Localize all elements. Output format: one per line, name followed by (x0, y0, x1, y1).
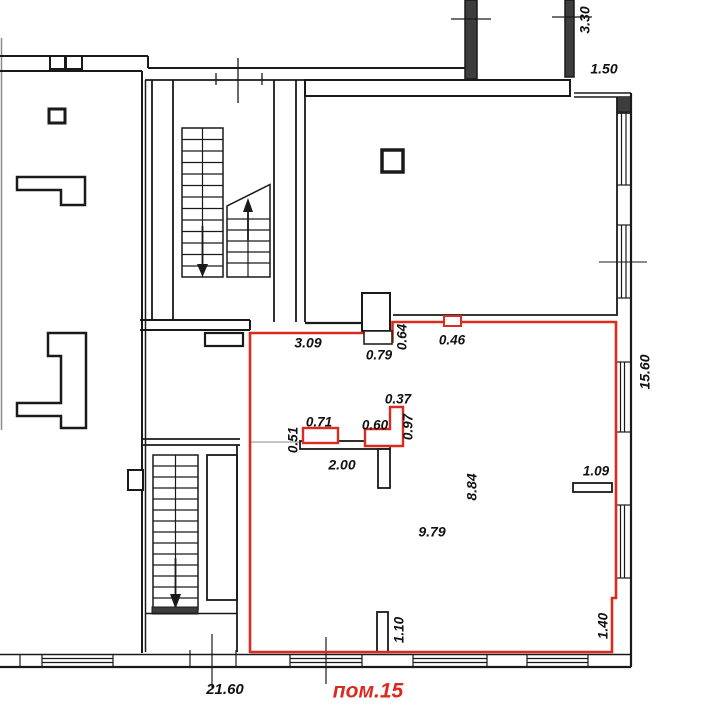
dimension-label-0-37: 0.37 (385, 392, 413, 407)
floor-plan-drawing: 3.30 1.50 3.09 0.79 0.64 0.46 15.60 0.37… (0, 0, 703, 726)
room-15-boundary (250, 316, 616, 653)
upper-wall-stub (565, 0, 574, 77)
dimension-label-0-46: 0.46 (439, 333, 466, 348)
partition-wall-stub (377, 612, 388, 652)
floor-plan: 3.30 1.50 3.09 0.79 0.64 0.46 15.60 0.37… (0, 0, 703, 726)
dimension-label-3-09: 3.09 (294, 335, 321, 351)
window (413, 654, 487, 667)
upper-wall-stub (465, 0, 477, 79)
partition-wall-stub (573, 483, 612, 492)
dimension-label-1-40: 1.40 (596, 612, 611, 639)
column (49, 109, 65, 123)
dimension-label-15-60: 15.60 (637, 354, 653, 389)
window (527, 654, 588, 667)
stair-landing (207, 455, 237, 600)
dimension-label-0-60: 0.60 (362, 418, 389, 433)
column-flag-upper (17, 177, 85, 205)
wall-pilaster (66, 56, 82, 69)
door-opening (444, 316, 461, 326)
window (616, 362, 631, 432)
wall-pilaster (128, 470, 143, 490)
bottom-exterior-wall (0, 634, 631, 688)
left-building-walls (0, 38, 148, 653)
dimension-label-3-30: 3.30 (577, 6, 593, 33)
room-15-interior-walls (251, 441, 612, 652)
dimension-label-1-50: 1.50 (590, 61, 617, 77)
window (616, 505, 631, 578)
red-column (303, 428, 338, 443)
dimension-label-0-79: 0.79 (366, 348, 393, 363)
dimension-label-21-60: 21.60 (205, 681, 244, 698)
main-room-walls (305, 0, 631, 331)
dimension-label-0-97: 0.97 (401, 412, 416, 440)
door-leaf (364, 331, 392, 344)
column (382, 150, 403, 172)
dimension-label-0-64: 0.64 (395, 323, 410, 350)
wall-pilaster (205, 333, 243, 346)
stairwell-top (140, 58, 465, 346)
column-flag-lower (17, 333, 86, 428)
dimension-label-1-10: 1.10 (392, 616, 407, 643)
dimension-label-9-79: 9.79 (418, 524, 445, 540)
window (617, 112, 631, 185)
dimension-label-2-00: 2.00 (327, 457, 355, 473)
dimension-label-8-84: 8.84 (464, 473, 480, 500)
door-pocket-wall (362, 293, 390, 331)
partition-wall-stub (378, 449, 390, 488)
dimension-label-0-71: 0.71 (306, 415, 332, 430)
dimension-label-1-09: 1.09 (583, 464, 610, 479)
dimension-labels: 3.30 1.50 3.09 0.79 0.64 0.46 15.60 0.37… (205, 6, 652, 698)
room-15-label: пом.15 (333, 680, 404, 703)
window (42, 654, 113, 667)
top-wall (305, 80, 570, 96)
stairwell-bottom (142, 439, 240, 652)
dimension-label-0-51: 0.51 (286, 427, 301, 453)
wall-pilaster (50, 56, 65, 69)
